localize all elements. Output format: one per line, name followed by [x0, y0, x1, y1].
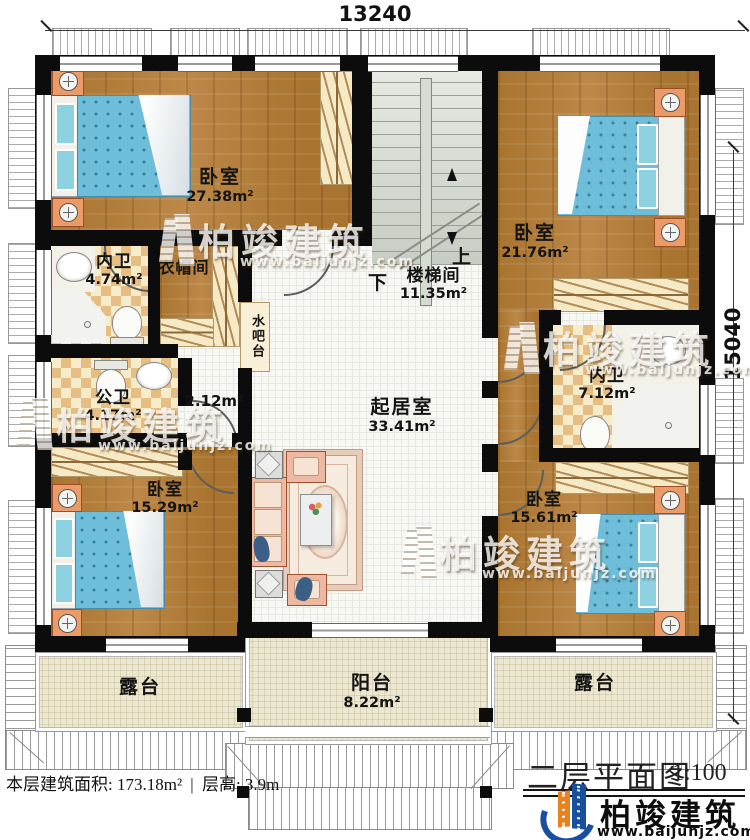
- room-label-terrace-right: 露台: [553, 672, 637, 695]
- wall: [482, 381, 498, 398]
- nightstand: [52, 484, 82, 512]
- dimension-right-line: [733, 150, 734, 722]
- wall: [604, 310, 699, 325]
- wall: [35, 230, 282, 246]
- terrace-railing: [5, 730, 252, 770]
- room-label-public-bath: 公卫 4.17m²: [80, 388, 146, 426]
- balcony-post: [480, 786, 492, 798]
- wall: [238, 433, 252, 638]
- exterior-window-frame: [8, 88, 37, 209]
- brand-website: www.baijunjz.com: [597, 824, 750, 840]
- window: [368, 56, 458, 72]
- toilet: [112, 306, 142, 340]
- pillow: [55, 103, 76, 145]
- pillow: [55, 149, 76, 191]
- nightstand: [654, 218, 686, 247]
- side-table: [255, 570, 283, 598]
- wall: [238, 246, 252, 302]
- coffee-table: [300, 494, 332, 546]
- window: [36, 250, 52, 335]
- room-label-bath-tl: 内卫 4.74m²: [80, 252, 148, 290]
- room-label-bath-tr: 内卫 7.12m²: [572, 366, 642, 404]
- terrace-door: [106, 638, 188, 652]
- window: [700, 385, 716, 455]
- stair-direction-arrow: [447, 168, 457, 181]
- balcony-railing: [248, 787, 492, 830]
- lamp-icon: [58, 489, 77, 508]
- exterior-window-frame: [8, 500, 37, 634]
- balcony-post: [237, 708, 251, 722]
- balcony-post: [479, 708, 493, 722]
- exterior-window-frame: [532, 28, 670, 57]
- window: [700, 95, 716, 215]
- wall: [178, 450, 192, 470]
- terrace-door: [556, 638, 642, 652]
- stair-up-label: 上: [452, 242, 471, 269]
- pillow: [638, 567, 658, 608]
- side-table-top: [256, 571, 280, 595]
- wall: [35, 344, 178, 358]
- wall: [539, 310, 561, 325]
- pillow: [637, 124, 658, 165]
- nightstand: [52, 198, 84, 227]
- pillow: [637, 168, 658, 209]
- bed-tr: [558, 116, 684, 216]
- stair-down-label: 下: [368, 268, 387, 295]
- wall: [539, 325, 553, 448]
- floor-height-text: 层高: 3.9m: [202, 775, 279, 794]
- balcony-sliding-door: [312, 623, 428, 638]
- wall: [352, 55, 372, 246]
- armchair: [286, 451, 326, 483]
- wall: [332, 230, 352, 246]
- side-table: [255, 451, 283, 479]
- exterior-window-frame: [360, 28, 468, 57]
- chair-cushion: [293, 457, 319, 476]
- wall: [482, 462, 498, 472]
- plan-scale: 1:100: [672, 760, 727, 787]
- flower-vase: [307, 501, 324, 516]
- sink: [136, 362, 172, 390]
- wardrobe: [320, 71, 354, 185]
- lamp-icon: [59, 203, 78, 222]
- exterior-window-frame: [715, 498, 744, 634]
- logo-building-orange: [558, 790, 570, 827]
- floor-plan-canvas: 13240 15040: [0, 0, 750, 840]
- wardrobe: [51, 447, 183, 477]
- dimension-top-label: 13240: [320, 2, 430, 26]
- wall: [482, 516, 498, 638]
- room-label-balcony: 阳台 8.22m²: [322, 672, 422, 712]
- room-label-cloakroom: 衣帽间: [152, 258, 216, 277]
- window: [540, 56, 660, 72]
- sofa-cushion: [254, 482, 282, 508]
- wardrobe: [160, 318, 214, 347]
- wardrobe: [212, 246, 240, 347]
- exterior-window-frame: [715, 88, 744, 225]
- wall: [539, 448, 699, 462]
- bed-bl: [51, 511, 163, 609]
- side-table-top: [256, 452, 280, 476]
- lamp-icon: [661, 223, 680, 242]
- wardrobe: [553, 278, 689, 312]
- exterior-window-frame: [247, 28, 348, 57]
- wall: [482, 55, 498, 310]
- lamp-icon: [661, 491, 680, 510]
- headboard: [658, 116, 685, 216]
- room-label-living-room: 起居室 33.41m²: [352, 396, 452, 436]
- wall: [35, 433, 187, 447]
- lamp-icon: [661, 93, 680, 112]
- window: [36, 508, 52, 625]
- toilet: [580, 416, 610, 452]
- exterior-window-frame: [170, 28, 240, 57]
- floor-area-text: 本层建筑面积: 173.18m²: [6, 775, 182, 794]
- logo-building-blue: [572, 783, 586, 829]
- pillow: [638, 522, 658, 563]
- window: [700, 505, 716, 625]
- window: [36, 95, 52, 200]
- room-label-stairwell: 楼梯间 11.35m²: [386, 266, 481, 304]
- room-label-small-hall: 2.12m²: [184, 392, 244, 410]
- room-label-bedroom-tl: 卧室 27.38m²: [165, 166, 275, 206]
- nightstand: [654, 88, 686, 117]
- drain-icon: [84, 321, 91, 328]
- lamp-icon: [59, 72, 78, 91]
- exterior-window-frame: [8, 355, 37, 447]
- nightstand: [654, 486, 686, 514]
- window: [178, 56, 232, 72]
- nightstand: [654, 611, 686, 639]
- window: [60, 56, 142, 72]
- room-label-terrace-left: 露台: [98, 676, 182, 699]
- brand-logo-icon: [540, 782, 594, 836]
- window: [255, 56, 340, 72]
- nightstand: [52, 609, 82, 637]
- room-label-bedroom-tr: 卧室 21.76m²: [483, 222, 587, 262]
- room-label-bedroom-br: 卧室 15.61m²: [492, 490, 596, 528]
- dimension-top-line: [45, 30, 745, 31]
- sink: [650, 336, 686, 365]
- headboard: [658, 514, 685, 614]
- sofa-cushion: [254, 509, 282, 535]
- exterior-window-frame: [715, 378, 744, 464]
- lamp-icon: [661, 616, 680, 635]
- wall: [482, 310, 498, 338]
- lamp-icon: [58, 614, 77, 633]
- room-label-water-bar: 水吧台: [244, 304, 264, 368]
- dimension-right-label: 15040: [721, 299, 745, 389]
- drain-icon: [665, 422, 672, 429]
- bed-br: [576, 514, 684, 614]
- wall: [428, 622, 490, 638]
- room-label-bedroom-bl: 卧室 15.29m²: [115, 480, 215, 518]
- footer-info: 本层建筑面积: 173.18m² | 层高: 3.9m: [6, 770, 279, 795]
- exterior-window-frame: [8, 243, 37, 344]
- exterior-window-frame: [52, 28, 152, 57]
- footer-divider: |: [190, 775, 193, 794]
- pillow: [54, 563, 74, 604]
- wall: [482, 444, 498, 462]
- pillow: [54, 518, 74, 559]
- window: [36, 362, 52, 438]
- balcony-edge: [245, 726, 490, 738]
